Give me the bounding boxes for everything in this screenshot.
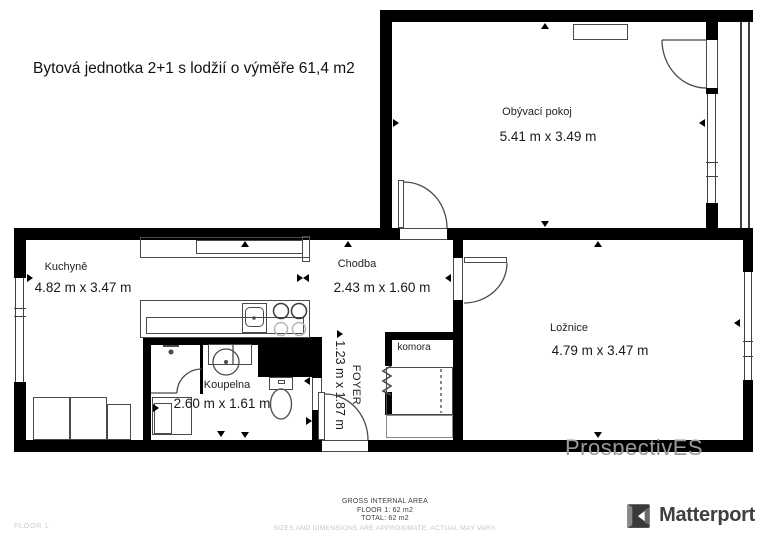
bedroom-label: Ložnice bbox=[550, 322, 588, 334]
bathroom-sink-counter bbox=[208, 344, 252, 365]
kitchen-bench-2 bbox=[70, 397, 107, 440]
total-area-value: TOTAL: 62 m2 bbox=[273, 515, 497, 524]
floor-label: FLOOR 1 bbox=[14, 521, 49, 530]
living-room-label: Obývací pokoj bbox=[502, 106, 572, 118]
bathroom-dimensions: 2.60 m x 1.61 m bbox=[174, 396, 271, 411]
living-room-dimensions: 5.41 m x 3.49 m bbox=[500, 129, 597, 144]
living-sideboard bbox=[573, 24, 628, 40]
bedroom-window bbox=[743, 272, 753, 380]
area-summary: GROSS INTERNAL AREA FLOOR 1: 62 m2 TOTAL… bbox=[273, 498, 497, 533]
matterport-logo: Matterport bbox=[625, 502, 755, 529]
foyer-dimensions: 1.23 m x 1.87 m bbox=[331, 340, 348, 430]
pantry-label: komora bbox=[397, 342, 430, 353]
kitchen-window bbox=[14, 278, 26, 382]
hallway-label: Chodba bbox=[338, 258, 377, 270]
kitchen-sink-basin bbox=[245, 307, 264, 327]
living-door-opening bbox=[400, 228, 447, 240]
bedroom-dimensions: 4.79 m x 3.47 m bbox=[552, 343, 649, 358]
floor-plan-page: Bytová jednotka 2+1 s lodžií o výměře 61… bbox=[0, 0, 768, 543]
shower-head-dot bbox=[169, 350, 174, 355]
matterport-wordmark: Matterport bbox=[659, 504, 755, 527]
bedroom-door-arc bbox=[464, 263, 507, 303]
gross-internal-area-title: GROSS INTERNAL AREA bbox=[273, 498, 497, 507]
toilet-bowl bbox=[271, 389, 292, 419]
entry-door-opening bbox=[322, 440, 368, 452]
kitchen-upper-cabinets-inner bbox=[196, 240, 303, 254]
living-door-arc bbox=[404, 182, 447, 228]
bathroom-label: Koupelna bbox=[204, 379, 251, 391]
entry-door-leaf bbox=[318, 392, 325, 440]
toilet-button bbox=[278, 380, 285, 384]
living-room-window bbox=[706, 94, 718, 203]
bedroom-door-opening bbox=[453, 258, 463, 300]
foyer-label-block: FOYER 1.23 m x 1.87 m bbox=[331, 340, 363, 430]
kitchen-dimensions: 4.82 m x 3.47 m bbox=[35, 280, 132, 295]
kitchen-label: Kuchyně bbox=[45, 261, 88, 273]
matterport-logo-icon bbox=[625, 502, 652, 529]
bedroom-door-leaf bbox=[464, 257, 507, 263]
watermark-text: ProspectivES bbox=[565, 438, 703, 455]
kitchen-cabinet-end bbox=[302, 236, 310, 262]
living-door-leaf bbox=[398, 180, 404, 228]
watermark-container: ProspectivES bbox=[565, 438, 703, 455]
kitchen-bench-3 bbox=[107, 404, 131, 440]
floor-area-value: FLOOR 1: 62 m2 bbox=[273, 507, 497, 516]
foyer-wardrobe bbox=[386, 367, 453, 415]
page-title: Bytová jednotka 2+1 s lodžií o výměře 61… bbox=[33, 60, 355, 78]
kitchen-counter-inner bbox=[146, 317, 304, 334]
loggia-door-arc bbox=[662, 40, 706, 88]
loggia-door-opening bbox=[706, 40, 718, 88]
shower-enclosure bbox=[151, 369, 202, 393]
foyer-label: FOYER bbox=[348, 340, 363, 430]
foyer-cabinet bbox=[386, 415, 453, 438]
hallway-dimensions: 2.43 m x 1.60 m bbox=[334, 280, 431, 295]
kitchen-bench-1 bbox=[33, 397, 70, 440]
disclaimer-text: SIZES AND DIMENSIONS ARE APPROXIMATE, AC… bbox=[273, 525, 497, 534]
